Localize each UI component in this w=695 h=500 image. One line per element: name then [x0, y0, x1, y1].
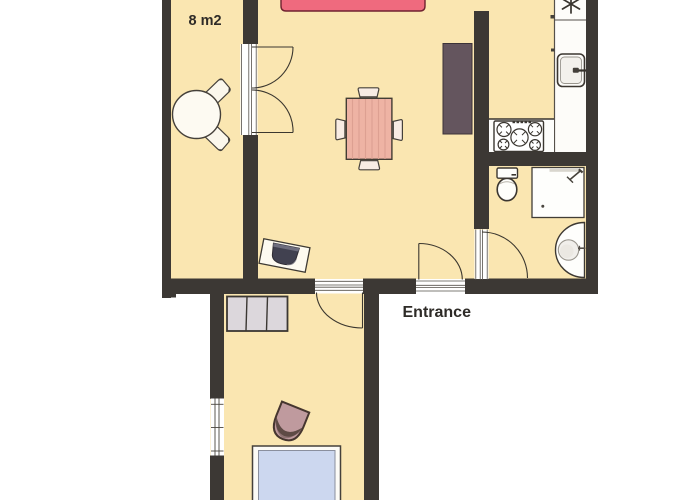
svg-text:Entrance: Entrance: [403, 304, 472, 321]
svg-text:8 m2: 8 m2: [189, 13, 222, 29]
